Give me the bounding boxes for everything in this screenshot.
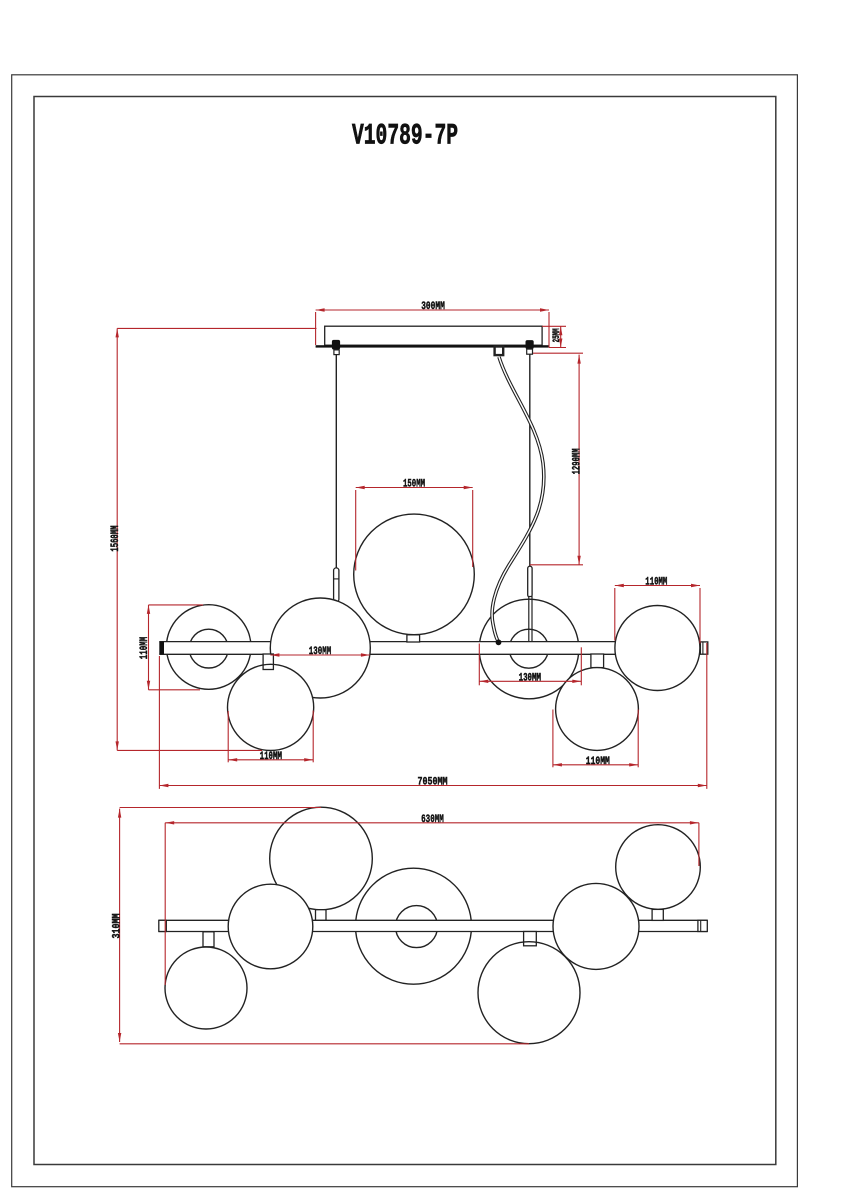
svg-text:110MM: 110MM bbox=[586, 756, 610, 768]
svg-text:130MM: 130MM bbox=[309, 646, 332, 658]
svg-text:V10789-7P: V10789-7P bbox=[352, 119, 458, 153]
svg-text:25MM: 25MM bbox=[552, 328, 563, 342]
svg-text:310MM: 310MM bbox=[111, 913, 123, 938]
svg-text:110MM: 110MM bbox=[645, 577, 667, 589]
svg-text:130MM: 130MM bbox=[519, 672, 542, 684]
svg-text:300MM: 300MM bbox=[421, 301, 445, 313]
svg-text:630MM: 630MM bbox=[421, 814, 444, 826]
svg-text:110MM: 110MM bbox=[139, 636, 151, 659]
svg-text:1290MM: 1290MM bbox=[571, 448, 583, 474]
svg-text:110MM: 110MM bbox=[260, 751, 283, 763]
svg-text:150MM: 150MM bbox=[403, 479, 425, 491]
svg-text:1560MM: 1560MM bbox=[110, 525, 122, 551]
svg-text:7050MM: 7050MM bbox=[418, 777, 448, 789]
